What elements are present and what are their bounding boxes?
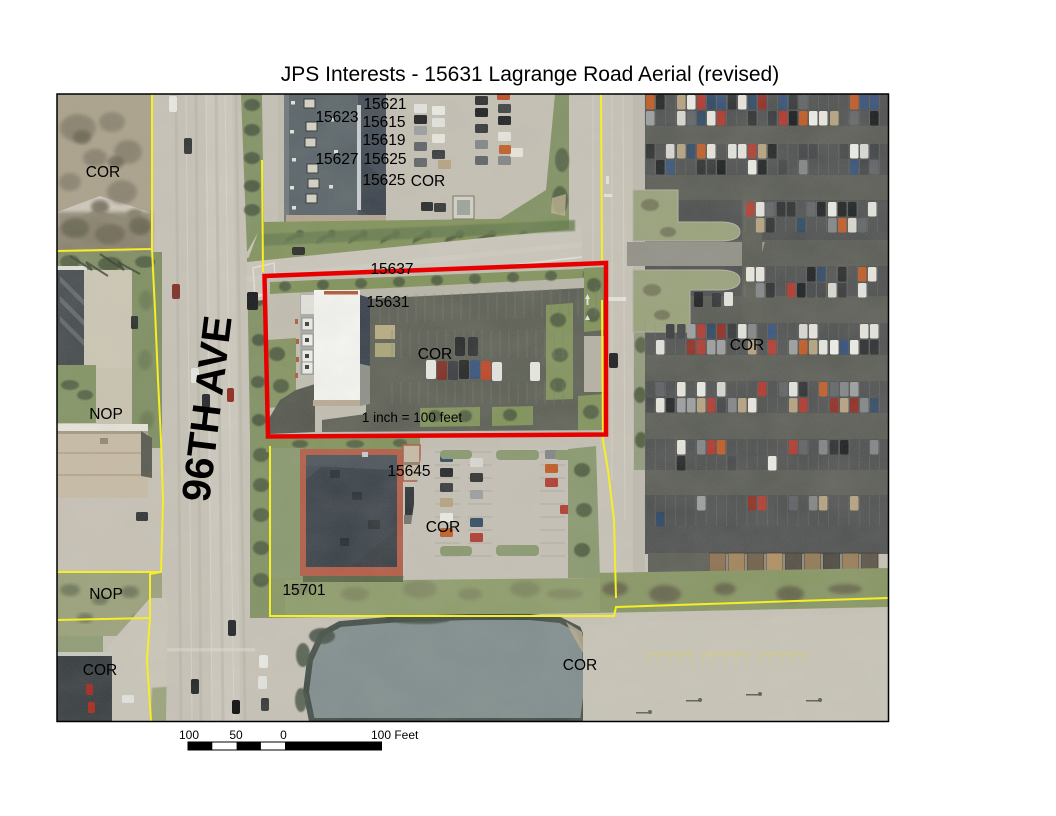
svg-text:COR: COR — [563, 657, 597, 674]
svg-text:15637: 15637 — [370, 261, 413, 278]
svg-text:COR: COR — [411, 173, 445, 190]
svg-text:15621: 15621 — [363, 96, 406, 113]
svg-text:15645: 15645 — [387, 463, 430, 480]
svg-text:COR: COR — [730, 337, 764, 354]
svg-text:15701: 15701 — [282, 582, 325, 599]
svg-text:1 inch = 100 feet: 1 inch = 100 feet — [362, 410, 462, 425]
svg-text:COR: COR — [83, 662, 117, 679]
svg-text:COR: COR — [426, 519, 460, 536]
svg-text:15623: 15623 — [315, 109, 358, 126]
svg-text:COR: COR — [86, 164, 120, 181]
svg-text:15627: 15627 — [315, 151, 358, 168]
svg-text:15615: 15615 — [362, 114, 405, 131]
svg-text:15625: 15625 — [363, 151, 406, 168]
svg-text:15625: 15625 — [362, 172, 405, 189]
svg-text:100 Feet: 100 Feet — [371, 728, 419, 742]
svg-text:NOP: NOP — [89, 406, 123, 423]
svg-text:15619: 15619 — [362, 132, 405, 149]
svg-text:COR: COR — [418, 346, 452, 363]
svg-text:JPS Interests - 15631 Lagrange: JPS Interests - 15631 Lagrange Road Aeri… — [281, 63, 779, 86]
svg-text:NOP: NOP — [89, 586, 123, 603]
svg-text:15631: 15631 — [366, 294, 409, 311]
svg-text:50: 50 — [229, 728, 243, 742]
svg-text:100: 100 — [179, 728, 199, 742]
svg-text:0: 0 — [280, 728, 287, 742]
